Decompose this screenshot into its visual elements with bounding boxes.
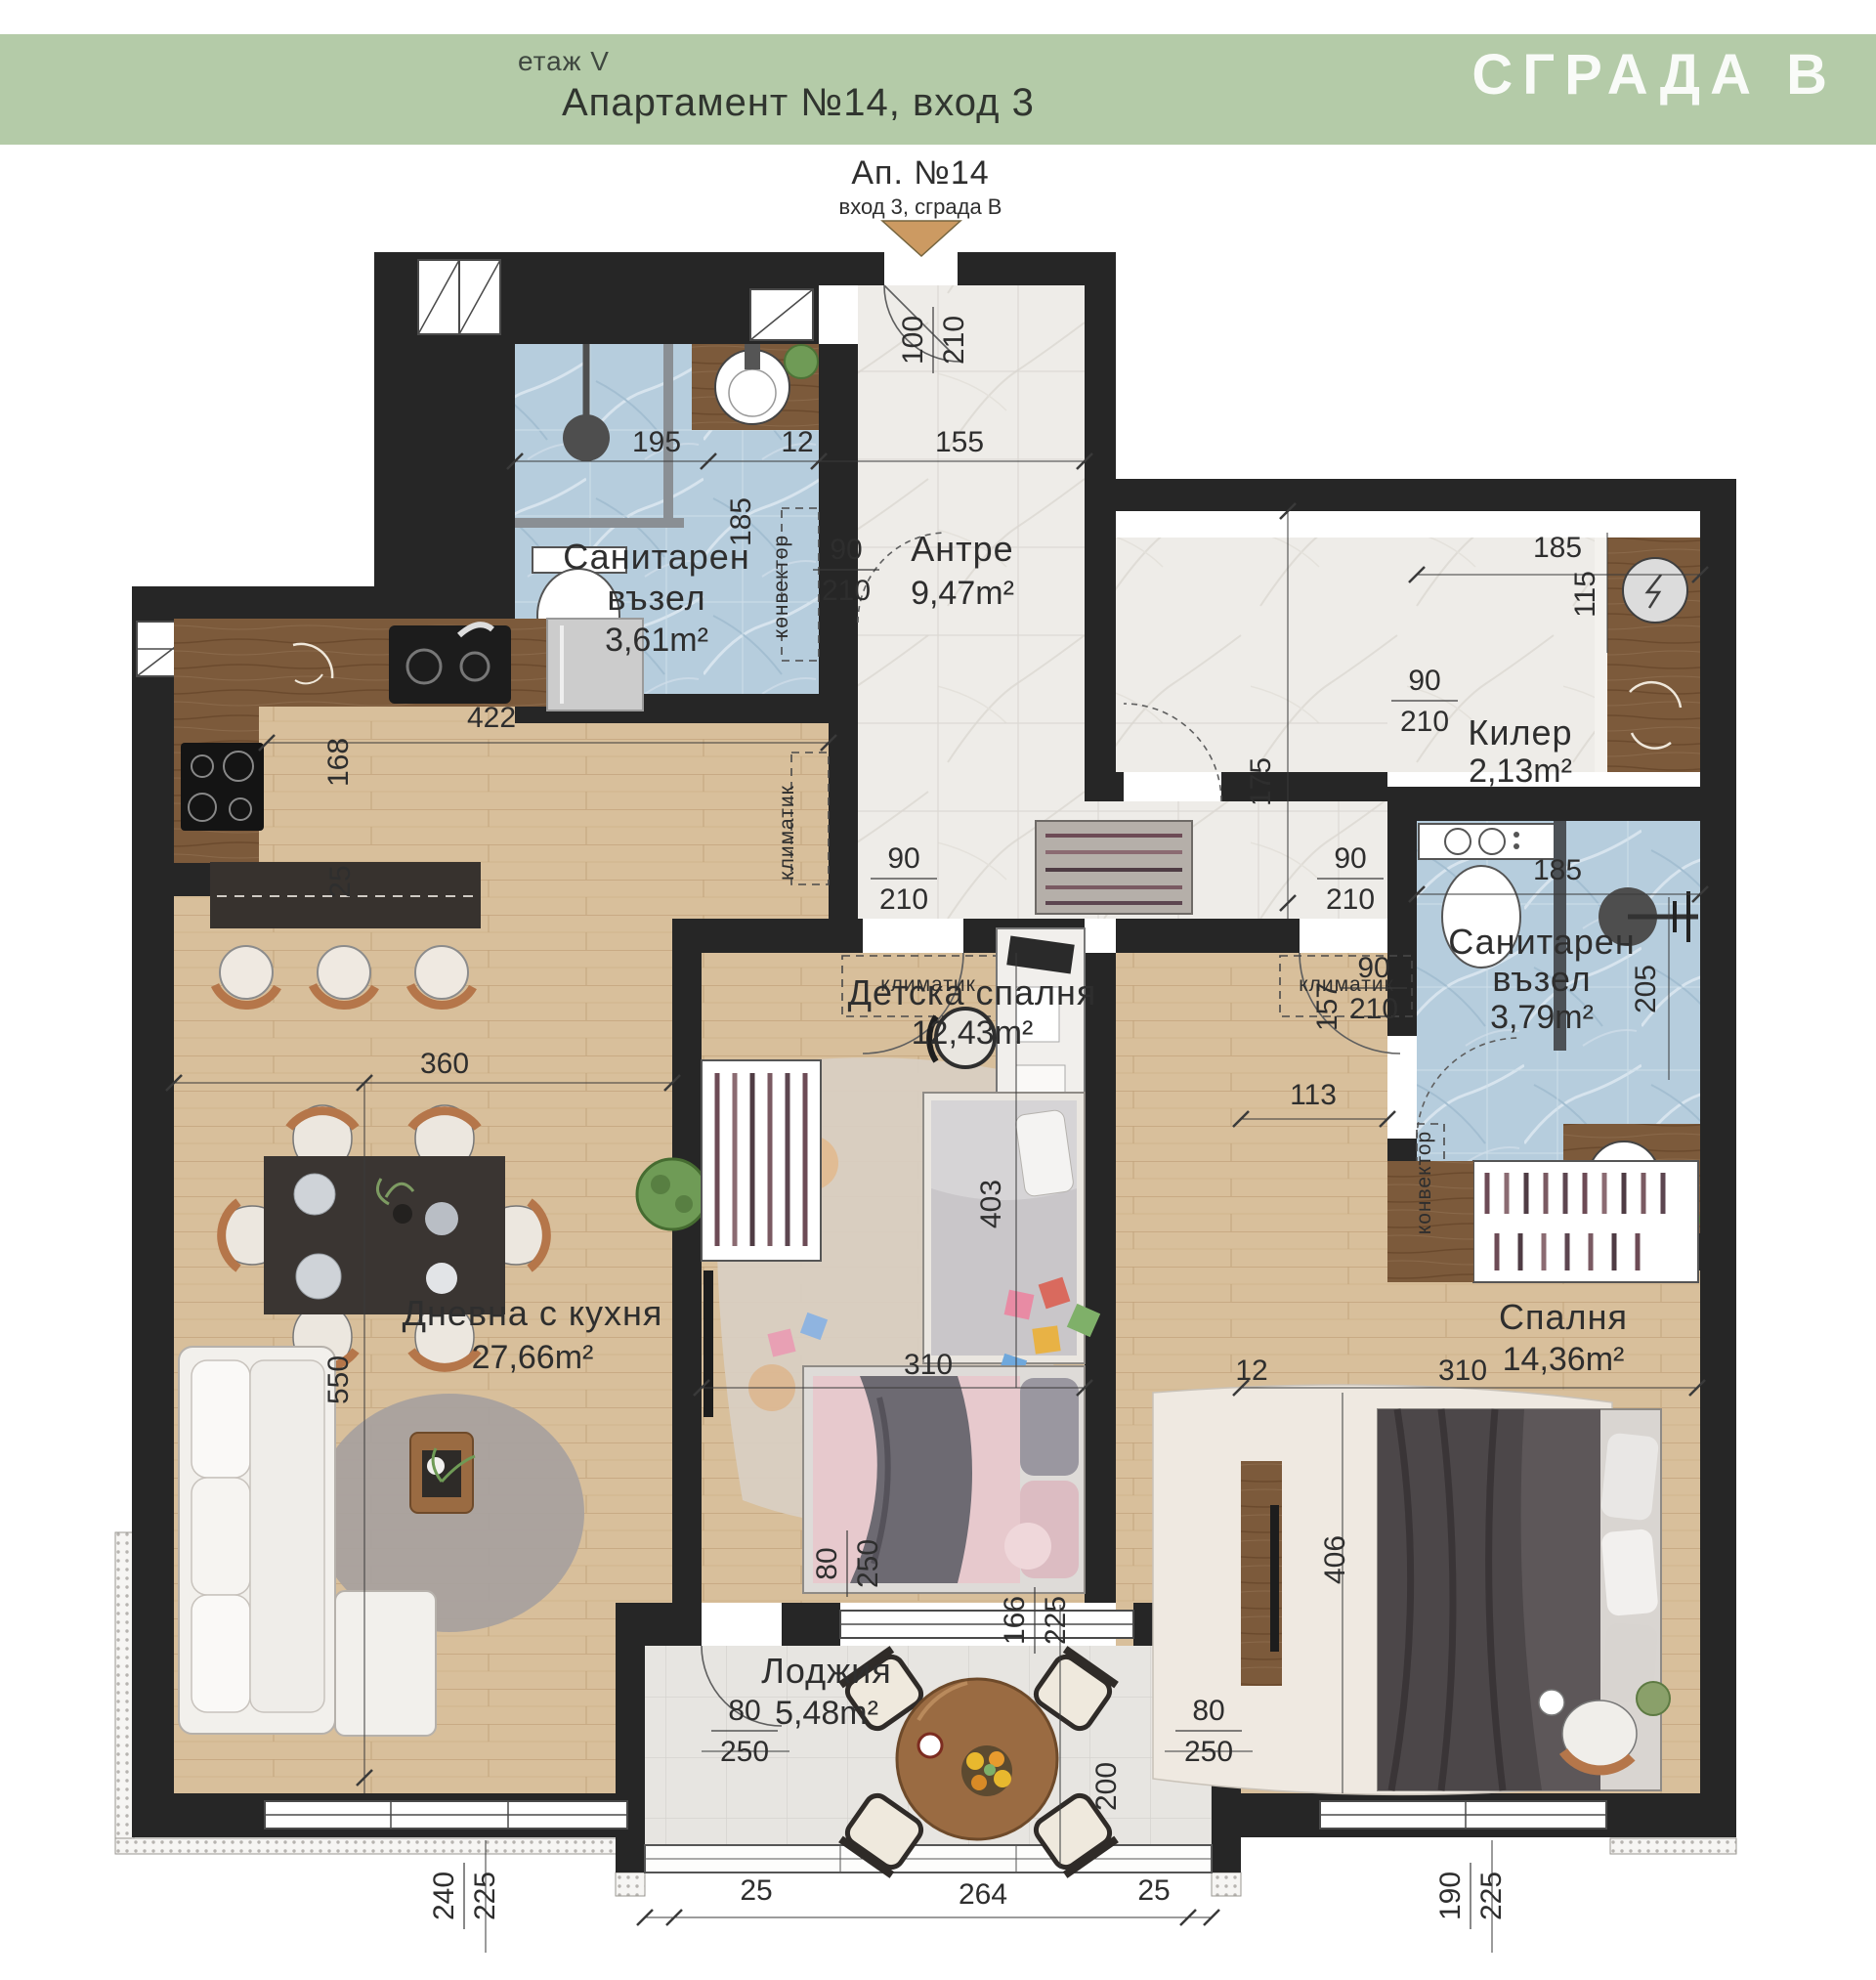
storage-fixtures bbox=[1595, 538, 1700, 772]
svg-text:климатик: климатик bbox=[776, 785, 798, 881]
dim-label: климатик bbox=[776, 785, 798, 881]
svg-text:100: 100 bbox=[897, 316, 929, 365]
room-label-lodzhia: Лоджия bbox=[761, 1651, 892, 1691]
room-label-detska: 12,43m² bbox=[912, 1014, 1034, 1052]
table-vase bbox=[393, 1204, 412, 1224]
svg-text:25: 25 bbox=[324, 865, 357, 897]
kids-wardrobe bbox=[702, 1060, 821, 1261]
shaft-window bbox=[418, 260, 500, 334]
svg-text:25: 25 bbox=[1137, 1874, 1170, 1907]
dim-label: 12 bbox=[781, 426, 813, 458]
dim-label: 190225 bbox=[1434, 1863, 1508, 1929]
svg-text:166: 166 bbox=[999, 1596, 1031, 1645]
svg-text:210: 210 bbox=[938, 316, 970, 365]
svg-text:190: 190 bbox=[1434, 1872, 1467, 1920]
svg-text:25: 25 bbox=[740, 1874, 772, 1907]
dim-label: климатик bbox=[880, 973, 976, 996]
svg-text:550: 550 bbox=[322, 1356, 355, 1404]
dim-label: 113 bbox=[1290, 1079, 1337, 1111]
room-label-antre: 9,47m² bbox=[911, 575, 1014, 612]
svg-text:403: 403 bbox=[975, 1180, 1007, 1228]
floorplan-page: етаж V Апартамент №14, вход 3 СГРАДА В А… bbox=[0, 0, 1876, 1980]
floorplan-drawing: Санитаренвъзел3,61m²Антре9,47m²Килер2,13… bbox=[0, 0, 1876, 1980]
svg-text:210: 210 bbox=[1326, 883, 1375, 916]
svg-text:185: 185 bbox=[725, 497, 757, 546]
dim-label: конвектор bbox=[1413, 1131, 1435, 1234]
dim-label: 406 bbox=[1319, 1535, 1351, 1584]
svg-text:195: 195 bbox=[632, 426, 681, 458]
dim-label: 25 bbox=[1137, 1874, 1170, 1907]
bedroom-window bbox=[1320, 1801, 1606, 1829]
svg-text:185: 185 bbox=[1533, 532, 1582, 564]
dim-label: 168 bbox=[322, 738, 355, 787]
room-label-kiler: 2,13m² bbox=[1469, 753, 1572, 790]
dim-label: 115 bbox=[1569, 571, 1601, 618]
svg-text:157: 157 bbox=[1311, 982, 1343, 1031]
room-label-dnevna: Дневна с кухня bbox=[403, 1293, 663, 1333]
plate bbox=[425, 1202, 458, 1235]
kids-daybed bbox=[803, 1366, 1085, 1593]
svg-text:310: 310 bbox=[1438, 1355, 1487, 1387]
svg-text:210: 210 bbox=[822, 575, 871, 607]
entrance-opening bbox=[884, 252, 958, 285]
dim-label: 25 bbox=[324, 865, 357, 897]
dim-label: 155 bbox=[935, 426, 984, 458]
svg-text:210: 210 bbox=[1400, 706, 1449, 738]
room-label-bath2: 3,79m² bbox=[1490, 999, 1594, 1036]
svg-text:250: 250 bbox=[852, 1539, 884, 1588]
living-window bbox=[265, 1801, 627, 1829]
plate bbox=[296, 1254, 341, 1299]
dim-label: 185 bbox=[1533, 854, 1582, 886]
svg-text:250: 250 bbox=[720, 1736, 769, 1768]
room-label-kiler: Килер bbox=[1468, 712, 1572, 753]
hall-cabinet bbox=[1036, 821, 1192, 914]
bedroom-wardrobe bbox=[1473, 1161, 1698, 1282]
room-label-lodzhia: 5,48m² bbox=[775, 1695, 878, 1732]
dim-label: 240225 bbox=[428, 1863, 501, 1929]
shower-head-icon bbox=[563, 414, 610, 461]
loggia-railing bbox=[645, 1845, 1212, 1872]
svg-text:конвектор: конвектор bbox=[1413, 1131, 1435, 1234]
svg-text:90: 90 bbox=[1357, 952, 1389, 984]
svg-text:210: 210 bbox=[1349, 993, 1398, 1025]
svg-text:90: 90 bbox=[1334, 842, 1366, 875]
dim-label: 166225 bbox=[999, 1587, 1072, 1654]
svg-text:90: 90 bbox=[1408, 665, 1440, 697]
dim-label: конвектор bbox=[770, 535, 792, 638]
dim-label: 185 bbox=[725, 497, 757, 546]
svg-text:205: 205 bbox=[1630, 965, 1662, 1013]
washing-machine bbox=[1623, 558, 1687, 623]
svg-text:113: 113 bbox=[1290, 1079, 1337, 1111]
svg-text:310: 310 bbox=[904, 1349, 953, 1381]
svg-text:200: 200 bbox=[1090, 1762, 1123, 1811]
room-label-spalnya: 14,36m² bbox=[1503, 1341, 1625, 1378]
svg-text:240: 240 bbox=[428, 1872, 460, 1920]
room-label-bath1: възел bbox=[607, 578, 705, 618]
dim-label: 175 bbox=[1245, 757, 1277, 806]
loggia-window bbox=[840, 1611, 1133, 1638]
dim-label: 195 bbox=[632, 426, 681, 458]
room-label-spalnya: Спалня bbox=[1499, 1297, 1628, 1337]
svg-text:90: 90 bbox=[887, 842, 919, 875]
svg-text:155: 155 bbox=[935, 426, 984, 458]
svg-text:360: 360 bbox=[420, 1048, 469, 1080]
room-label-antre: Антре bbox=[911, 529, 1013, 569]
faucet-icon bbox=[745, 344, 760, 369]
plant-icon bbox=[785, 345, 818, 378]
dim-label: 205 bbox=[1630, 965, 1662, 1013]
svg-text:225: 225 bbox=[469, 1872, 501, 1920]
dim-label: 360 bbox=[420, 1048, 469, 1080]
kids-tv bbox=[703, 1270, 713, 1417]
dim-label: 25 bbox=[740, 1874, 772, 1907]
bedroom-chair bbox=[1562, 1700, 1637, 1770]
entrance-arrow bbox=[882, 221, 960, 256]
svg-text:406: 406 bbox=[1319, 1535, 1351, 1584]
room-label-bath2: възел bbox=[1492, 959, 1591, 999]
svg-text:90: 90 bbox=[830, 534, 862, 566]
plate bbox=[426, 1263, 457, 1294]
svg-text:250: 250 bbox=[1184, 1736, 1233, 1768]
svg-text:климатик: климатик bbox=[880, 973, 976, 996]
svg-text:12: 12 bbox=[1235, 1355, 1267, 1387]
bedroom-side-table bbox=[1539, 1690, 1564, 1715]
dim-label: 157 bbox=[1311, 982, 1343, 1031]
coffee-cup bbox=[918, 1734, 942, 1757]
bathroom1-window bbox=[750, 289, 813, 340]
svg-text:264: 264 bbox=[959, 1878, 1007, 1911]
svg-text:225: 225 bbox=[1040, 1596, 1072, 1645]
svg-text:185: 185 bbox=[1533, 854, 1582, 886]
dim-label: 403 bbox=[975, 1180, 1007, 1228]
svg-text:422: 422 bbox=[467, 702, 516, 734]
svg-text:225: 225 bbox=[1475, 1872, 1508, 1920]
room-label-dnevna: 27,66m² bbox=[472, 1339, 594, 1376]
dim-label: 185 bbox=[1533, 532, 1582, 564]
bar-stools bbox=[215, 946, 473, 1006]
svg-text:210: 210 bbox=[879, 883, 928, 916]
flower-bowl bbox=[961, 1745, 1012, 1796]
plant-icon bbox=[1637, 1682, 1670, 1715]
svg-text:168: 168 bbox=[322, 738, 355, 787]
room-label-bath1: 3,61m² bbox=[605, 622, 708, 659]
plate bbox=[294, 1174, 335, 1215]
dim-label: 200 bbox=[1090, 1762, 1123, 1811]
dim-label: 264 bbox=[959, 1878, 1007, 1911]
dim-label: 12 bbox=[1235, 1355, 1267, 1387]
svg-text:115: 115 bbox=[1569, 571, 1601, 618]
svg-text:80: 80 bbox=[1192, 1695, 1224, 1727]
room-label-bath2: Санитарен bbox=[1448, 922, 1635, 962]
dim-label: 100210 bbox=[897, 307, 970, 373]
svg-text:175: 175 bbox=[1245, 757, 1277, 806]
living-plant bbox=[637, 1159, 707, 1229]
room-label-bath1: Санитарен bbox=[563, 537, 749, 577]
bedroom-tv bbox=[1270, 1505, 1279, 1652]
dim-label: 310 bbox=[1438, 1355, 1487, 1387]
svg-text:конвектор: конвектор bbox=[770, 535, 792, 638]
coffee-tray bbox=[422, 1450, 461, 1497]
svg-text:80: 80 bbox=[728, 1695, 760, 1727]
dim-label: 422 bbox=[467, 702, 516, 734]
dim-label: 550 bbox=[322, 1356, 355, 1404]
dim-label: 310 bbox=[904, 1349, 953, 1381]
svg-text:12: 12 bbox=[781, 426, 813, 458]
svg-text:80: 80 bbox=[811, 1547, 843, 1579]
